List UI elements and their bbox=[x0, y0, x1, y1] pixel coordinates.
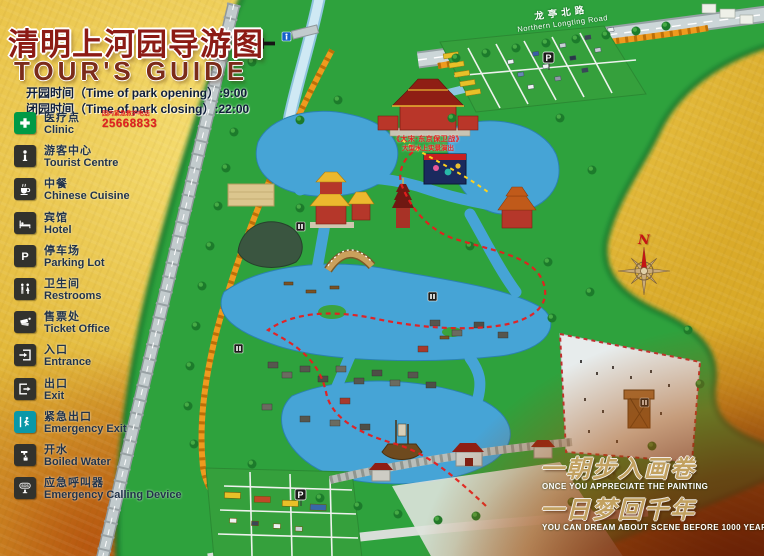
opening-time: 开园时间（Time of park opening）:9:00 bbox=[26, 85, 249, 101]
bed-icon bbox=[14, 212, 36, 234]
legend-label-en: Restrooms bbox=[44, 290, 101, 302]
legend-label-en: Ticket Office bbox=[44, 323, 110, 335]
legend-item-boiled-water: 开水 Boiled Water bbox=[14, 444, 182, 468]
legend-label-zh: 应急呼叫器 bbox=[44, 477, 104, 489]
compass-rose-graphic bbox=[614, 245, 674, 297]
legend-label-zh: 紧急出口 bbox=[44, 411, 92, 423]
show-type: 大型水上实景演出 bbox=[362, 145, 494, 153]
emergency-exit-sign bbox=[282, 32, 291, 41]
legend-label-zh: 游客中心 bbox=[44, 145, 92, 157]
restroom-sign bbox=[640, 398, 649, 407]
info-icon bbox=[14, 145, 36, 167]
svg-text:P: P bbox=[21, 251, 28, 263]
legend-label-zh: 入口 bbox=[44, 344, 68, 356]
legend-label-zh: 中餐 bbox=[44, 178, 68, 190]
water-show-label: 《大宋·东京保卫战》 大型水上实景演出 bbox=[362, 136, 494, 153]
legend-label-en: Boiled Water bbox=[44, 456, 111, 468]
restroom-sign bbox=[296, 222, 305, 231]
legend-item-entrance: 入口 Entrance bbox=[14, 344, 182, 368]
legend-label-zh: 开水 bbox=[44, 444, 68, 456]
ticket-icon bbox=[14, 311, 36, 333]
cuisine-icon bbox=[14, 178, 36, 200]
show-name: 《大宋·东京保卫战》 bbox=[362, 136, 494, 145]
legend-label-en: Hotel bbox=[44, 224, 72, 236]
legend-label-en: Emergency Exit bbox=[44, 423, 127, 435]
park-slogan: 一朝步入画卷 ONCE YOU APPRECIATE THE PAINTING … bbox=[540, 457, 760, 539]
emergency-exit-icon bbox=[14, 411, 36, 433]
slogan-line2-zh: 一日梦回千年 bbox=[540, 498, 760, 522]
legend-label-zh: 停车场 bbox=[44, 245, 80, 257]
lake-island bbox=[318, 305, 346, 319]
fireworks-show-poster bbox=[424, 154, 466, 184]
compass-rose: N bbox=[614, 233, 674, 302]
legend-label-zh: 售票处 bbox=[44, 311, 80, 323]
legend-item-ticket-office: 售票处 Ticket Office bbox=[14, 311, 182, 335]
exit-icon bbox=[14, 378, 36, 400]
legend-label-en: Entrance bbox=[44, 356, 91, 368]
clinic-phone: 园内紧急救护电话 25668833 bbox=[102, 112, 157, 130]
parking-icon: P bbox=[14, 245, 36, 267]
legend-item-hotel: 宾馆 Hotel bbox=[14, 212, 182, 236]
slogan-line1-zh: 一朝步入画卷 bbox=[540, 457, 760, 481]
restroom-sign bbox=[428, 292, 437, 301]
legend-item-clinic: 医疗点 Clinic 园内紧急救护电话 25668833 bbox=[14, 112, 182, 136]
slogan-line1-en: ONCE YOU APPRECIATE THE PAINTING bbox=[542, 483, 760, 491]
map-legend: 医疗点 Clinic 园内紧急救护电话 25668833 游客中心 Touris… bbox=[14, 112, 182, 501]
tour-guide-map-poster: P P bbox=[0, 0, 764, 556]
legend-item-emergency-call: SOS 应急呼叫器 Emergency Calling Device bbox=[14, 477, 182, 501]
clinic-icon bbox=[14, 112, 36, 134]
legend-label-en: Parking Lot bbox=[44, 257, 105, 269]
sos-icon: SOS bbox=[14, 477, 36, 499]
legend-item-tourist-centre: 游客中心 Tourist Centre bbox=[14, 145, 182, 169]
legend-label-en: Emergency Calling Device bbox=[44, 489, 182, 501]
legend-item-exit: 出口 Exit bbox=[14, 378, 182, 402]
legend-label-zh: 卫生间 bbox=[44, 278, 80, 290]
slogan-line2-en: YOU CAN DREAM ABOUT SCENE BEFORE 1000 YE… bbox=[542, 524, 760, 532]
entrance-icon bbox=[14, 344, 36, 366]
legend-item-parking: P 停车场 Parking Lot bbox=[14, 245, 182, 269]
legend-item-chinese-cuisine: 中餐 Chinese Cuisine bbox=[14, 178, 182, 202]
svg-text:P: P bbox=[545, 53, 551, 63]
page-subtitle: TOUR'S GUIDE bbox=[14, 56, 248, 87]
legend-label-zh: 医疗点 bbox=[44, 112, 80, 124]
courtyard bbox=[228, 184, 274, 206]
legend-label-en: Chinese Cuisine bbox=[44, 190, 130, 202]
restroom-sign bbox=[234, 344, 243, 353]
legend-item-emergency-exit: 紧急出口 Emergency Exit bbox=[14, 411, 182, 435]
clinic-phone-number: 25668833 bbox=[102, 119, 157, 131]
siege-tower bbox=[624, 390, 654, 428]
restrooms-icon bbox=[14, 278, 36, 300]
legend-label-en: Clinic bbox=[44, 124, 74, 136]
legend-label-zh: 宾馆 bbox=[44, 212, 68, 224]
svg-text:SOS: SOS bbox=[21, 484, 29, 488]
svg-text:P: P bbox=[297, 490, 303, 500]
legend-label-en: Exit bbox=[44, 390, 64, 402]
legend-label-zh: 出口 bbox=[44, 378, 68, 390]
boiled-water-icon bbox=[14, 444, 36, 466]
clinic-phone-note: 园内紧急救护电话 bbox=[102, 112, 153, 118]
legend-label-en: Tourist Centre bbox=[44, 157, 118, 169]
legend-item-restrooms: 卫生间 Restrooms bbox=[14, 278, 182, 302]
